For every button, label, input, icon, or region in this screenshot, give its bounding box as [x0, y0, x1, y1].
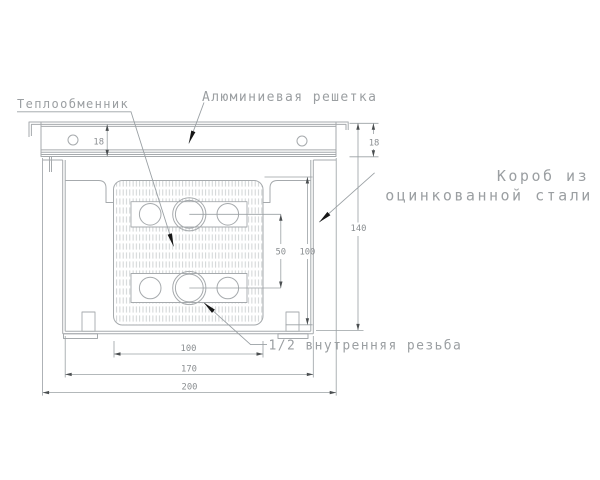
dim-text-170: 170 — [181, 365, 197, 375]
dim-text-18-left: 18 — [93, 138, 104, 148]
dimension-grille-height-left: 18 — [93, 124, 108, 156]
grille-left-lip — [50, 157, 52, 173]
box-pad-left — [64, 334, 98, 339]
box-inner-ledge-right — [263, 181, 311, 203]
aluminum-grille-label: Алюминиевая решетка — [202, 90, 377, 105]
grille-bar-profile-lines — [41, 124, 336, 154]
dim-text-50: 50 — [276, 248, 287, 258]
dimension-inner-height-100: 100 — [265, 177, 316, 325]
dim-text-200: 200 — [182, 383, 198, 393]
steel-box-label-line2: оцинкованной стали — [385, 187, 593, 205]
technical-drawing-canvas: 18 18 140 100 50 100 — [0, 0, 600, 480]
grille-left-hook — [29, 122, 41, 137]
steel-box-leader-arrow-icon — [319, 212, 330, 222]
dimension-exchanger-width-100: 100 — [114, 341, 263, 358]
callout-steel-box: Короб из оцинкованной стали — [319, 167, 593, 222]
grille-right-tab — [336, 122, 348, 130]
dim-text-18-right: 18 — [369, 139, 380, 149]
heat-exchanger-label: Теплообменник — [17, 97, 129, 111]
grille-mounting-hole-right — [297, 136, 307, 146]
dim-text-100-vert: 100 — [299, 248, 315, 258]
box-bottom — [63, 331, 314, 334]
grille-mounting-hole-left — [68, 135, 78, 145]
convector-cross-section-drawing: 18 18 140 100 50 100 — [0, 0, 600, 480]
heat-exchanger-block — [114, 181, 281, 326]
steel-box-label-line1: Короб из — [497, 167, 589, 185]
grille-bar-outline — [41, 122, 336, 157]
box-foot-right — [286, 312, 299, 331]
box-foot-left — [82, 312, 95, 331]
box-inner-ledge-left — [65, 181, 113, 203]
dim-text-100-bottom: 100 — [181, 344, 197, 354]
dim-text-140: 140 — [351, 224, 367, 234]
thread-label: 1/2 внутренняя резьба — [269, 339, 463, 354]
dimension-tube-spacing-50: 50 — [276, 214, 287, 288]
aluminum-grille-leader-arrow-icon — [189, 131, 196, 144]
dimension-grille-height-right: 18 — [350, 123, 380, 157]
callout-aluminum-grille: Алюминиевая решетка — [189, 90, 378, 144]
aluminum-grille-bar — [29, 122, 348, 172]
